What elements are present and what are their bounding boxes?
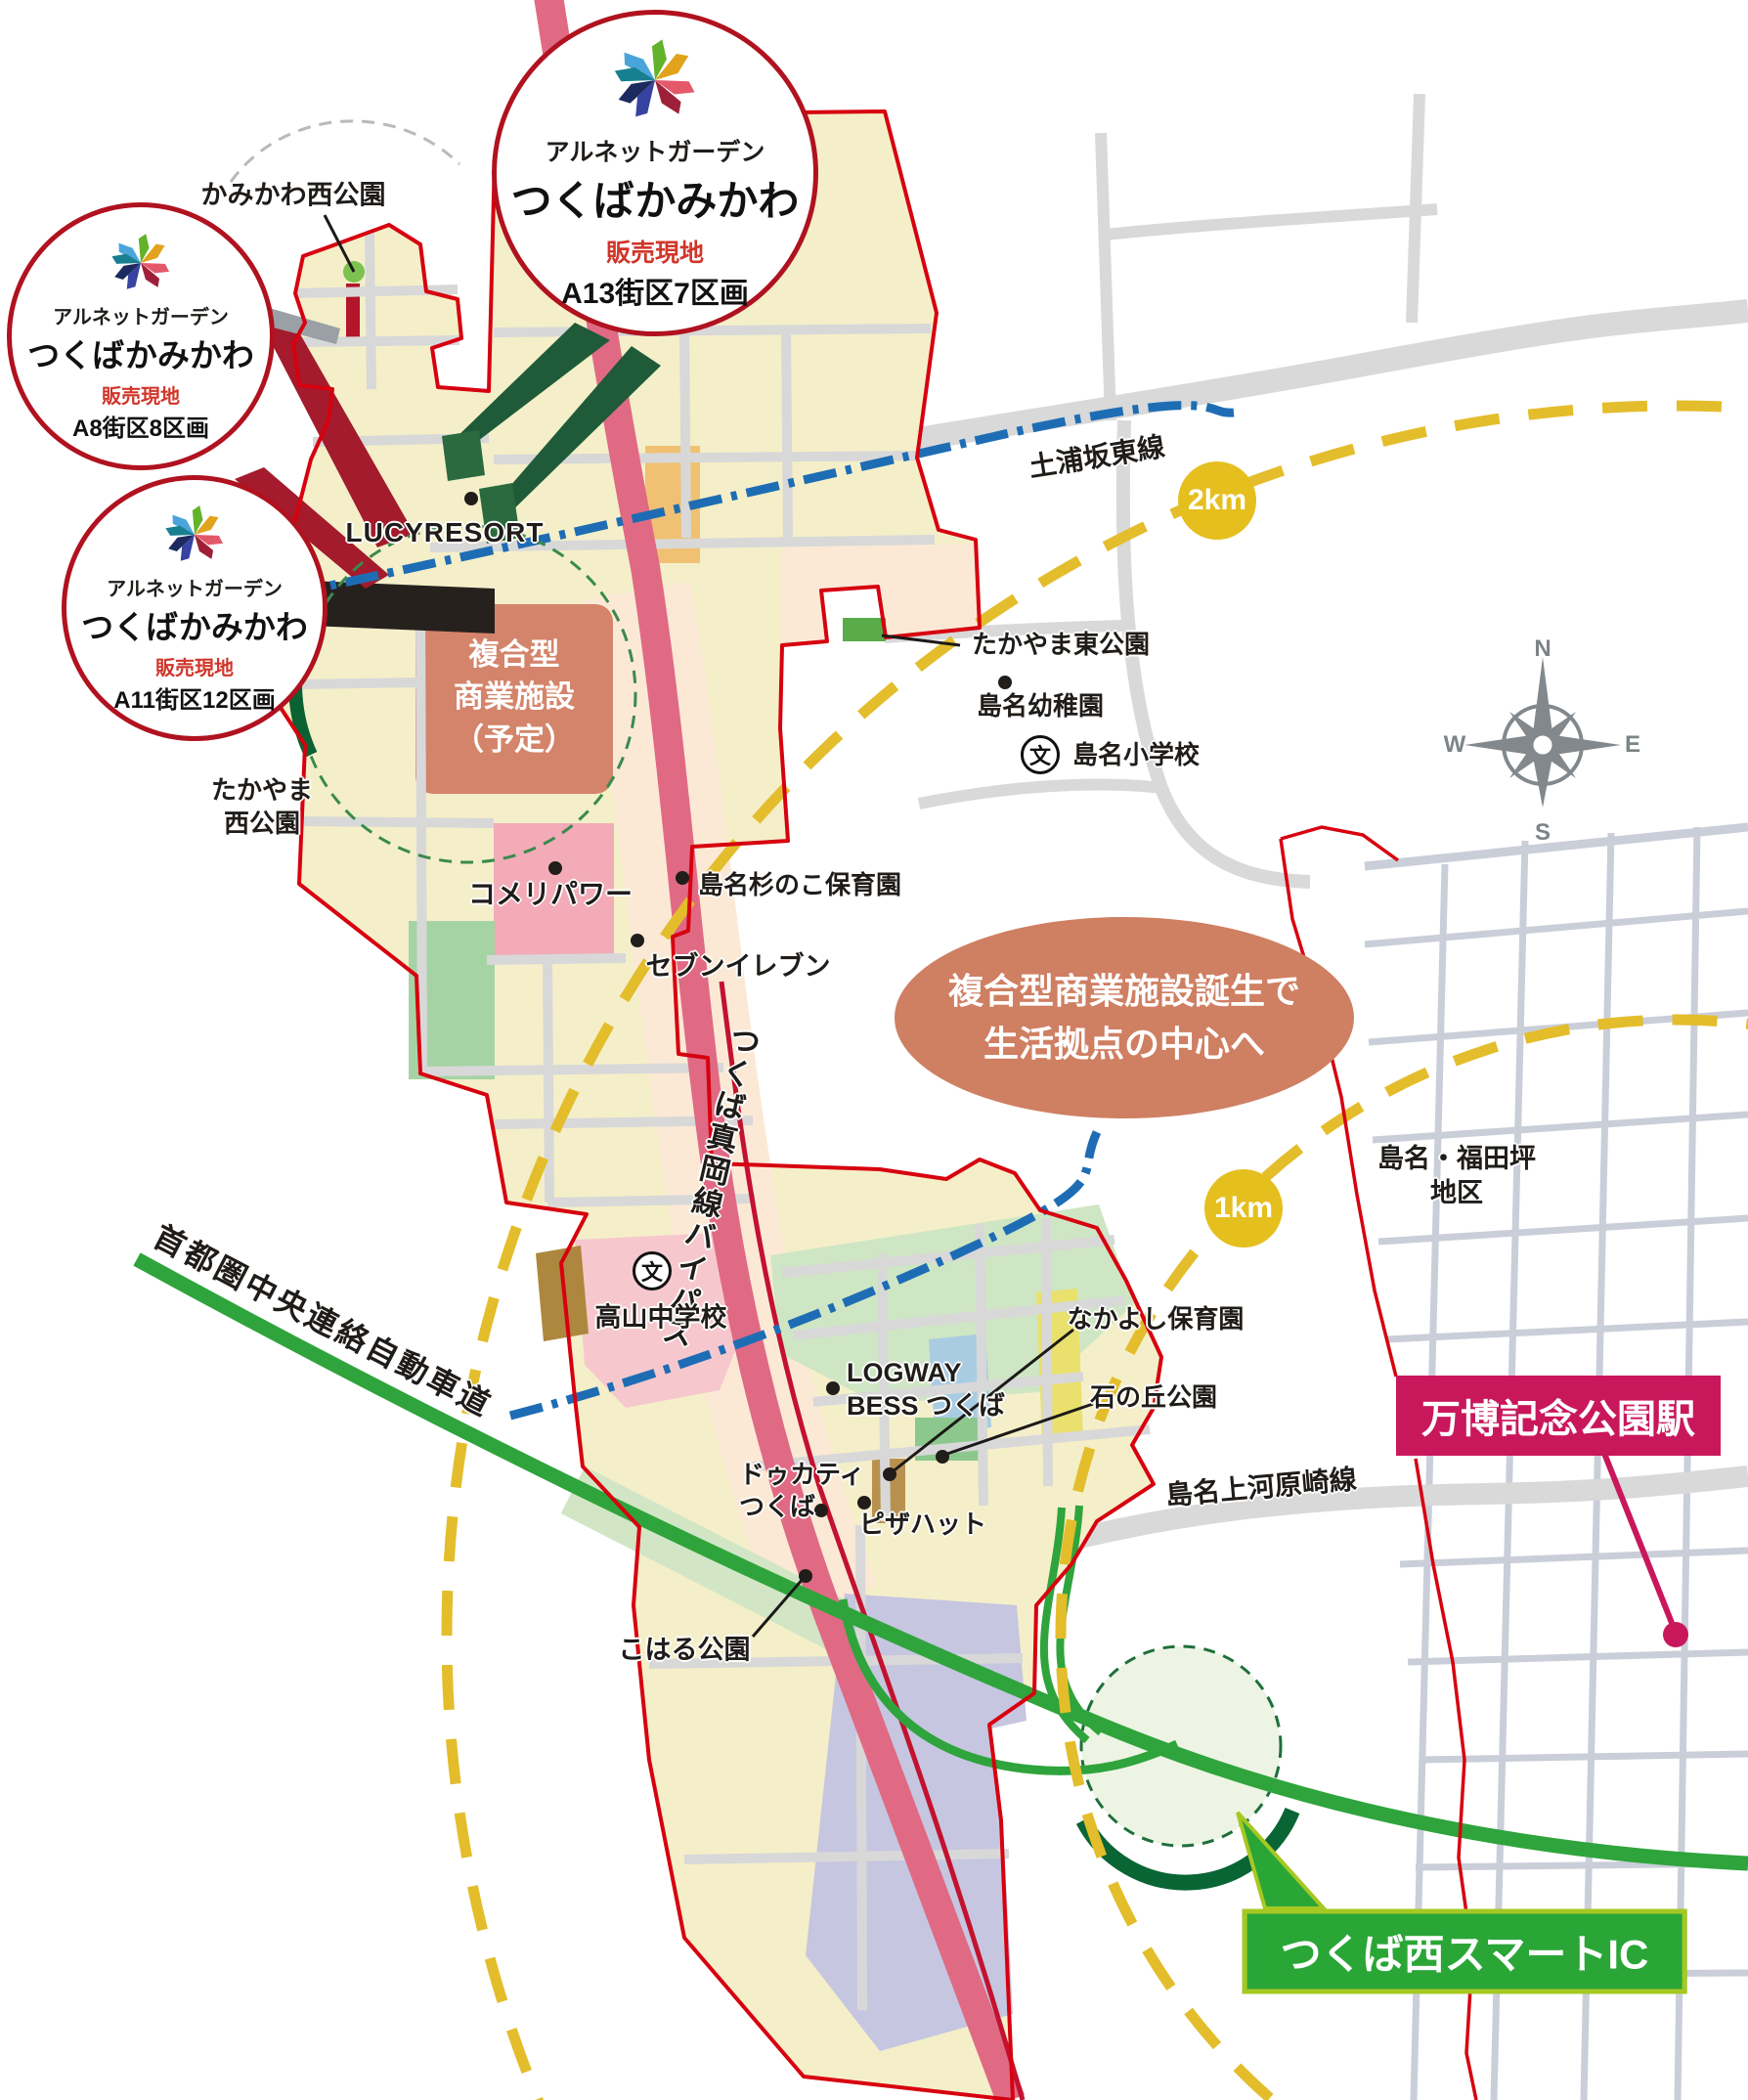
label-commercial-site: 複合型 商業施設 （予定） [454, 634, 575, 761]
label-shimana-elementary: 島名小学校 [1072, 739, 1200, 772]
compass-n: N [1534, 635, 1551, 663]
badge-block: A13街区7区画 [561, 269, 749, 312]
logway-line2: BESS つくば [847, 1390, 1005, 1423]
label-ishinooka-park: 石の丘公園 [1090, 1381, 1217, 1415]
label-suginoko-nursery: 島名杉のこ保育園 [698, 869, 901, 902]
label-kamikawa-nishi-park: かみかわ西公園 [201, 178, 386, 212]
badge-name: つくばかみかわ [81, 601, 308, 648]
station-label: 万博記念公園駅 [1396, 1376, 1721, 1456]
label-takayama-nishi-park: たかやま 西公園 [211, 774, 313, 841]
label-koharu-park: こはる公園 [619, 1633, 751, 1667]
smart-ic-label: つくば西スマートIC [1243, 1909, 1687, 1994]
label-takayama-jhs: 高山中学校 [595, 1300, 727, 1334]
distance-badge-2km: 2km [1178, 461, 1256, 540]
commercial-line3: （予定） [454, 719, 575, 761]
site-badge-a8: アルネットガーデン つくばかみかわ 販売現地 A8街区8区画 [7, 202, 275, 470]
badge-name: つくばかみかわ [27, 329, 254, 376]
badge-brand: アルネットガーデン [546, 133, 765, 168]
label-pizza-hut: ピザハット [859, 1509, 986, 1542]
callout-line2: 生活拠点の中心へ [983, 1018, 1265, 1071]
distance-badge-1km: 1km [1204, 1169, 1283, 1247]
callout-commercial: 複合型商業施設誕生で 生活拠点の中心へ [895, 917, 1354, 1118]
alnet-logo-icon [610, 35, 700, 125]
badge-brand: アルネットガーデン [107, 573, 283, 601]
badge-block: A8街区8区画 [72, 409, 209, 443]
label-lucyresort: LUCYRESORT [346, 515, 545, 550]
school-icon-shimana: 文 [1021, 735, 1060, 774]
badge-site-label: 販売現地 [155, 652, 234, 680]
callout-line1: 複合型商業施設誕生で [948, 965, 1300, 1018]
map-canvas: かみかわ西公園 LUCYRESORT 複合型 商業施設 （予定） 土浦坂東線 2… [0, 0, 1748, 2100]
badge-site-label: 販売現地 [606, 234, 704, 269]
label-shimana-kindergarten: 島名幼稚園 [977, 690, 1104, 723]
commercial-line1: 複合型 [454, 634, 575, 676]
badge-name: つくばかみかわ [511, 168, 800, 228]
ducati-line1: ドゥカティ [739, 1459, 864, 1491]
station-dot [1663, 1622, 1688, 1647]
compass-w: W [1444, 731, 1466, 759]
site-badge-a11: アルネットガーデン つくばかみかわ 販売現地 A11街区12区画 [62, 475, 328, 741]
badge-brand: アルネットガーデン [53, 301, 229, 329]
compass-e: E [1625, 731, 1640, 759]
compass-icon [1464, 657, 1621, 808]
commercial-line2: 商業施設 [454, 676, 575, 718]
ducati-line2: つくば [739, 1491, 864, 1523]
label-ducati-tsukuba: ドゥカティ つくば [739, 1459, 864, 1522]
label-logway-bess: LOGWAY BESS つくば [847, 1357, 1005, 1423]
takayama-nishi-line1: たかやま [211, 774, 313, 808]
label-fukudatsubo-district: 島名・福田坪 地区 [1377, 1142, 1536, 1210]
logway-line1: LOGWAY [847, 1357, 1005, 1390]
alnet-logo-icon [109, 231, 173, 295]
site-badge-a13: アルネットガーデン つくばかみかわ 販売現地 A13街区7区画 [492, 10, 818, 336]
compass-s: S [1535, 819, 1551, 847]
fukudatsubo-line2: 地区 [1377, 1176, 1536, 1210]
label-nakayoshi-nursery: なかよし保育園 [1068, 1303, 1245, 1336]
alnet-logo-icon [162, 503, 227, 567]
label-seven-eleven: セブンイレブン [646, 949, 831, 984]
label-takayama-higashi-park: たかやま東公園 [972, 629, 1150, 662]
takayama-nishi-line2: 西公園 [211, 808, 313, 841]
school-icon-takayama: 文 [633, 1251, 672, 1291]
badge-site-label: 販売現地 [102, 380, 180, 409]
fukudatsubo-line1: 島名・福田坪 [1377, 1142, 1536, 1176]
label-komeri-power: コメリパワー [468, 877, 633, 912]
badge-block: A11街区12区画 [113, 680, 275, 715]
